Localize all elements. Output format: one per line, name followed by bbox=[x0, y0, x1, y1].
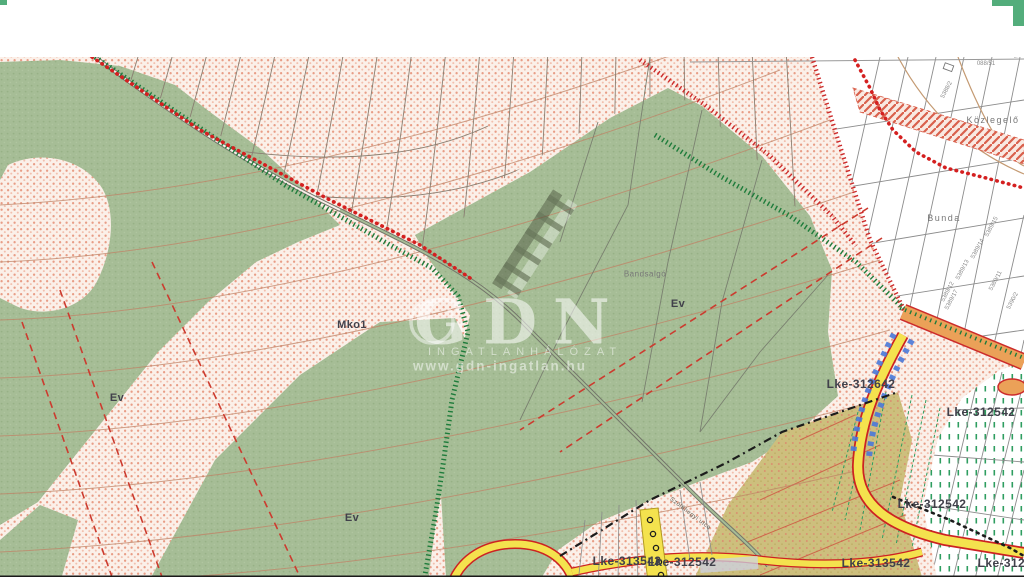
header-accent-right-side bbox=[1013, 0, 1024, 26]
header-bar bbox=[0, 0, 1024, 57]
header-accent-left bbox=[0, 0, 7, 5]
map-bottom-edge bbox=[0, 576, 1024, 578]
map-canvas[interactable] bbox=[0, 0, 1024, 583]
map-viewer: Mko1 Ev Ev Ev Lke-312642 Lke-312542 Lke-… bbox=[0, 0, 1024, 583]
